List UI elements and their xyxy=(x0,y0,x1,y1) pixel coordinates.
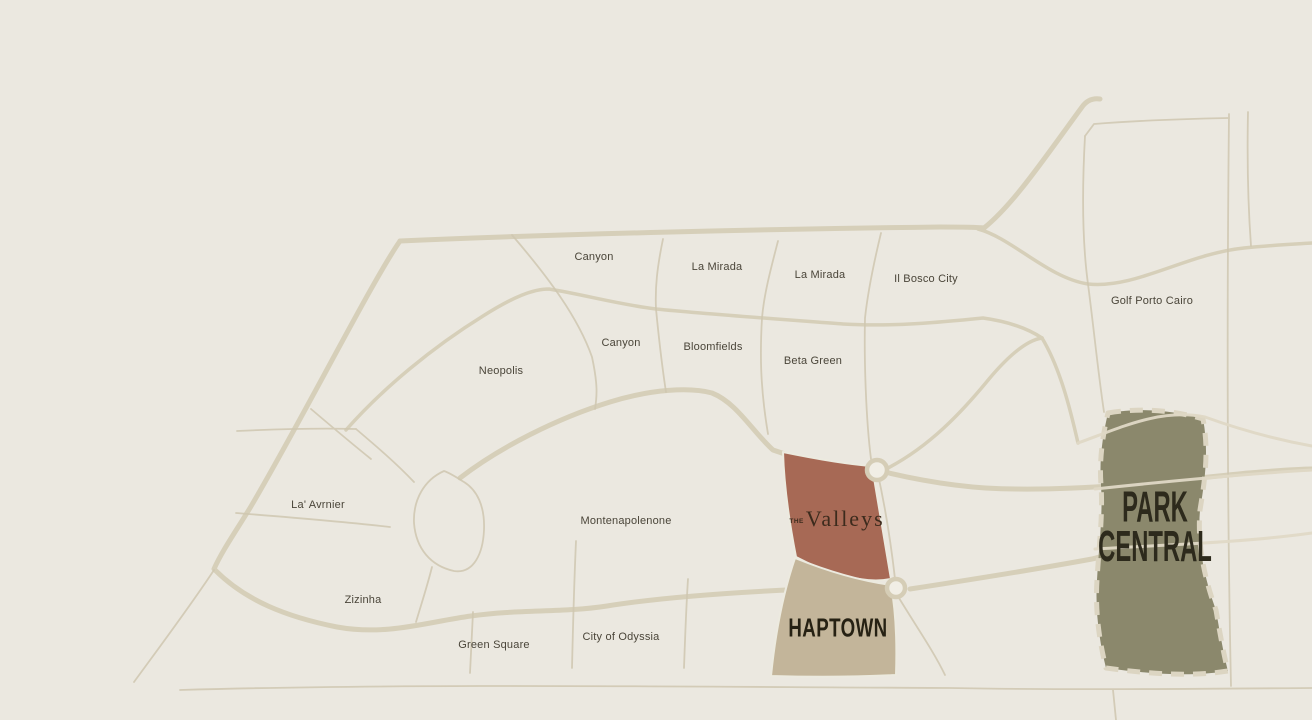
road-east-vertical-1 xyxy=(1228,114,1231,686)
road-bottom-boundary xyxy=(180,686,1312,690)
map-vector-layer xyxy=(0,0,1312,720)
road-avrnier-south xyxy=(236,513,390,527)
area-label-la-avrnier: La' Avrnier xyxy=(291,499,345,511)
area-label-bloomfields: Bloomfields xyxy=(683,341,742,353)
road-golf-band xyxy=(978,229,1312,284)
area-label-neopolis: Neopolis xyxy=(479,365,523,377)
road-haptown-southeast xyxy=(899,598,945,675)
the-valleys-logo-prefix: THE xyxy=(789,518,804,525)
area-label-canyon-north: Canyon xyxy=(574,251,613,263)
area-label-golf-porto-cairo: Golf Porto Cairo xyxy=(1111,295,1193,307)
road-divider-ilbosco xyxy=(865,233,881,459)
road-avrnier-north xyxy=(237,429,356,431)
road-valleys-northeast xyxy=(888,338,1042,468)
road-golf-north-edge xyxy=(1085,118,1229,136)
area-label-city-of-odyssia: City of Odyssia xyxy=(583,631,660,643)
road-loop xyxy=(414,471,484,571)
road-southwest-diagonal xyxy=(134,570,214,682)
area-label-beta-green: Beta Green xyxy=(784,355,842,367)
road-divider-lamirada xyxy=(656,239,666,392)
road-golf-west-edge xyxy=(1083,136,1104,412)
park-central-logo-line2: CENTRAL xyxy=(1098,528,1212,568)
area-label-green-square: Green Square xyxy=(458,639,530,651)
road-divider-greensquare-east xyxy=(572,541,576,668)
road-avrnier-link xyxy=(356,429,414,482)
map-canvas: Canyon La Mirada La Mirada Il Bosco City… xyxy=(0,0,1312,720)
road-park-approach xyxy=(1042,338,1078,443)
area-label-canyon-south: Canyon xyxy=(601,337,640,349)
haptown-logo[interactable]: HAPTOWN xyxy=(788,613,887,644)
road-top-boundary xyxy=(400,227,984,241)
the-valleys-logo-name: Valleys xyxy=(806,506,885,532)
road-south-east xyxy=(910,554,1112,589)
park-central-logo[interactable]: PARK CENTRAL xyxy=(1098,488,1212,568)
area-label-montenapolenone: Montenapolenone xyxy=(580,515,671,527)
road-divider-odyssia xyxy=(684,579,688,668)
roundabout-marker-north[interactable] xyxy=(867,460,887,480)
the-valleys-logo[interactable]: THE Valleys xyxy=(789,506,884,532)
area-label-il-bosco-city: Il Bosco City xyxy=(894,273,958,285)
area-label-la-mirada-east: La Mirada xyxy=(795,269,846,281)
road-mid-band xyxy=(346,289,1042,430)
area-label-la-mirada-west: La Mirada xyxy=(692,261,743,273)
area-label-zizinha: Zizinha xyxy=(345,594,382,606)
road-east-vertical-2 xyxy=(1248,112,1251,246)
road-loop-tail xyxy=(416,567,432,622)
roundabout-marker-south[interactable] xyxy=(887,579,905,597)
masterplan-map-page: { "map": { "type": "real-estate masterpl… xyxy=(0,0,1312,720)
road-divider-bloomfields xyxy=(761,241,778,434)
road-bottom-stub xyxy=(1113,690,1116,720)
